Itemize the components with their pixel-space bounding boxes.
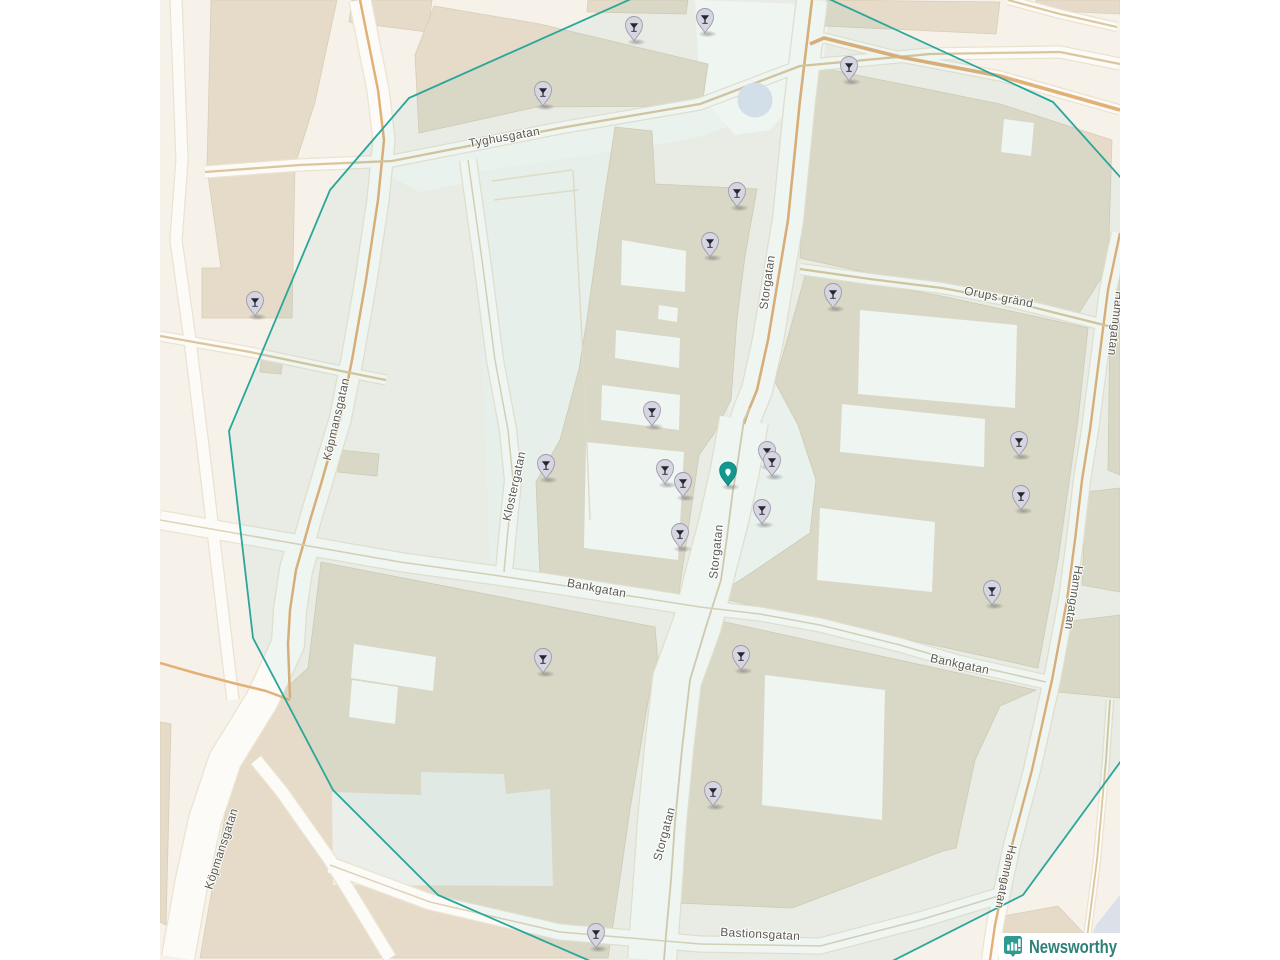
svg-text:Newsworthy: Newsworthy	[1029, 936, 1118, 957]
